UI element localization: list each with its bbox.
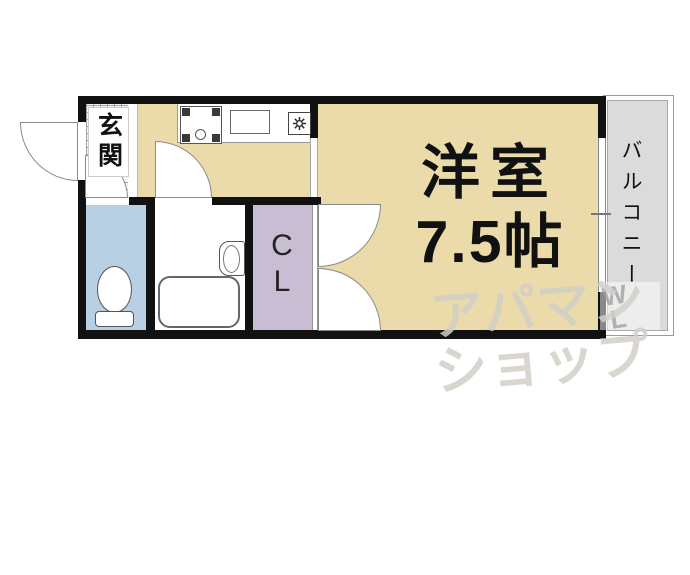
sink-corner-icon	[182, 134, 190, 142]
wall-bath-closet	[245, 197, 253, 330]
wall-kitchen-room	[310, 96, 318, 138]
wall-left-upper	[78, 96, 86, 122]
main-room-doorway	[310, 138, 318, 197]
sink-corner-icon	[212, 108, 220, 116]
entrance-door-swing	[20, 122, 78, 181]
entrance-label-box: 玄関	[88, 107, 129, 177]
stove-burner-icon	[288, 112, 311, 135]
kitchen-sink-icon	[180, 106, 222, 144]
washbasin-icon	[219, 241, 245, 276]
entrance-label: 玄関	[91, 112, 127, 172]
sink-corner-icon	[182, 108, 190, 116]
wall-toilet-bath	[146, 197, 155, 330]
main-room-label: 洋室 7.5帖	[330, 140, 650, 278]
closet-label: C L	[253, 228, 311, 300]
wall-right-upper	[598, 96, 606, 138]
wall-top	[78, 96, 606, 104]
toilet-tank-icon	[95, 311, 134, 327]
sink-drain-icon	[195, 129, 206, 140]
wall-hall-closet	[212, 197, 321, 205]
watermark-text: アパマン ショップ	[420, 271, 661, 401]
wall-left-lower	[78, 180, 86, 339]
entrance-step	[128, 104, 138, 197]
floor-plan: 玄関 C L 洋室 7.5帖 バルコニー W L アパマン ショップ	[0, 0, 690, 575]
sink-corner-icon	[212, 134, 220, 142]
kitchen-counter-icon	[230, 110, 270, 134]
main-room-name: 洋室	[330, 140, 650, 206]
closet-label-line2: L	[253, 264, 311, 300]
washbasin-bowl-icon	[223, 245, 240, 273]
toilet-bowl-icon	[97, 266, 132, 313]
main-room-size: 7.5帖	[330, 206, 650, 278]
closet-label-line1: C	[253, 228, 311, 264]
bathtub-icon	[158, 276, 240, 328]
